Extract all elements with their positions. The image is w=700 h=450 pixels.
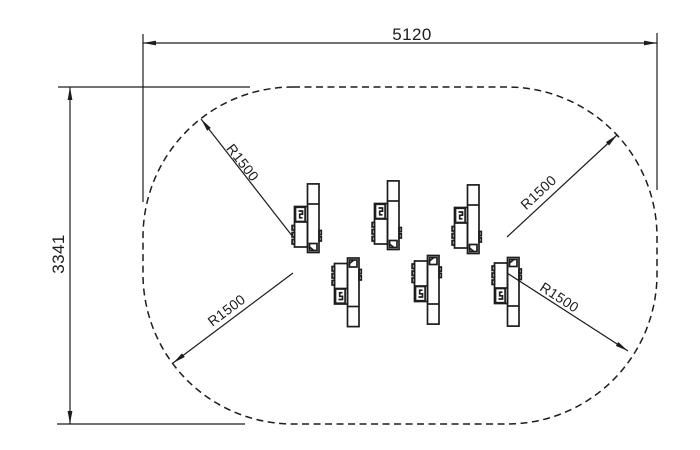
equipment-unit-top: [292, 184, 321, 253]
width-dimension-label: 5120: [392, 25, 431, 44]
equipment-unit-bottom: [492, 258, 521, 327]
height-dimension-label: 3341: [49, 234, 68, 273]
radius-arrowhead-bottom-left: [173, 353, 185, 363]
radius-label-top-right: R1500: [517, 172, 559, 213]
technical-drawing-page: 5120 3341 R1500 R1500 R1500: [0, 0, 700, 450]
safety-zone-boundary: [143, 87, 657, 424]
radius-label-top-left: R1500: [223, 141, 262, 185]
radius-leader-bottom-left: [173, 273, 293, 363]
radius-arrowhead-bottom-right: [616, 342, 628, 351]
radius-leader-bottom-right: [507, 273, 628, 351]
equipment-unit-bottom: [412, 256, 441, 325]
width-dimension: 5120: [143, 25, 657, 202]
equipment-unit-top: [452, 185, 481, 254]
plan-view-drawing: 5120 3341 R1500 R1500 R1500: [0, 0, 700, 450]
equipment-unit-top: [372, 181, 401, 250]
radius-arrowhead-top-left: [201, 119, 211, 131]
radius-leader-top-right: [507, 135, 617, 237]
arrowhead-right: [644, 41, 657, 46]
arrowhead-top: [68, 87, 73, 100]
radius-callouts: R1500 R1500 R1500 R1500: [173, 119, 628, 363]
equipment-unit-bottom: [332, 258, 361, 327]
machines-layer: [292, 181, 521, 327]
height-dimension: 3341: [49, 87, 250, 424]
arrowhead-bottom: [68, 411, 73, 424]
arrowhead-left: [143, 41, 156, 46]
